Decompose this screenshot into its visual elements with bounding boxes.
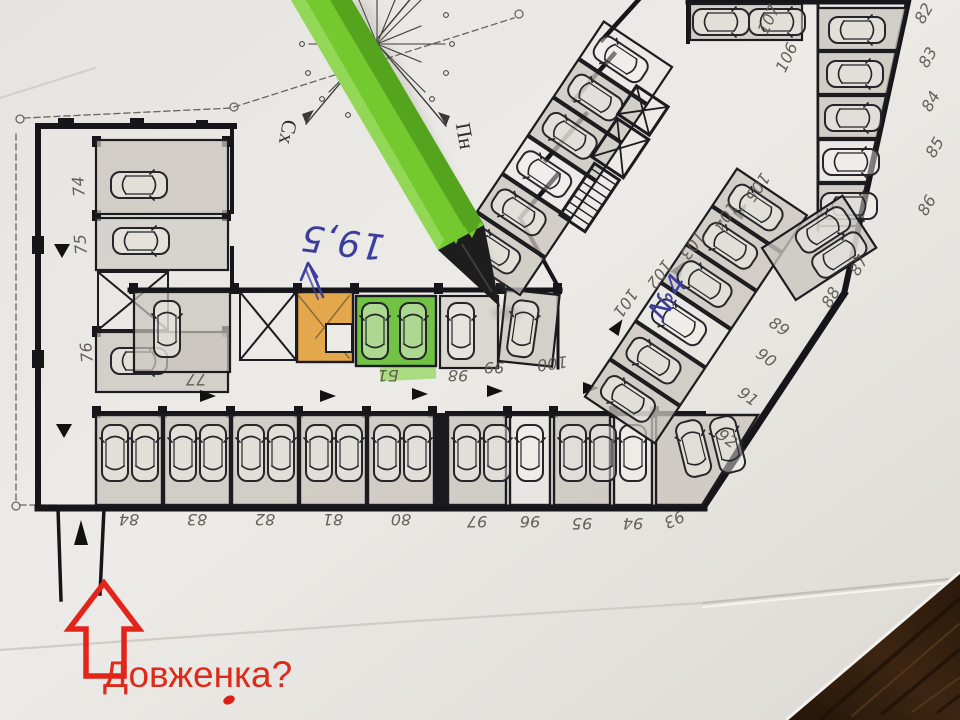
spot-label: 80 — [391, 510, 411, 529]
car-icon — [588, 425, 618, 481]
car-icon — [198, 425, 228, 481]
spot-label: 75 — [70, 234, 91, 256]
bottom-left-group — [96, 415, 434, 505]
spot-label: 94 — [623, 514, 643, 533]
car-icon — [130, 425, 160, 481]
car-icon — [304, 425, 334, 481]
compass-north-label: Пн — [451, 121, 479, 151]
spot-label: 98 — [448, 366, 468, 385]
car-icon — [558, 425, 588, 481]
car-icon — [266, 425, 296, 481]
car-icon — [452, 425, 482, 481]
car-icon — [152, 301, 182, 357]
car-icon — [236, 425, 266, 481]
street-question-text: Довженка? — [103, 654, 292, 695]
car-icon — [360, 303, 390, 359]
car-icon — [372, 425, 402, 481]
car-icon — [825, 103, 881, 133]
spot-label: 82 — [255, 510, 275, 529]
car-icon — [334, 425, 364, 481]
car-icon — [515, 425, 545, 481]
spot-label: 99 — [484, 358, 504, 377]
spot-label: 97 — [466, 512, 487, 531]
photo-of-parking-plan: 74 75 76 — [0, 0, 960, 720]
car-icon — [111, 170, 167, 200]
spot-label: 95 — [572, 514, 592, 533]
car-icon — [402, 425, 432, 481]
car-icon — [113, 226, 169, 256]
spot-label: 96 — [520, 512, 540, 531]
spot-label: 83 — [187, 510, 207, 529]
car-icon — [693, 7, 749, 37]
spot-label: 76 — [76, 342, 97, 364]
car-icon — [100, 425, 130, 481]
photo-canvas: 74 75 76 — [0, 0, 960, 720]
spot-label: 84 — [119, 510, 139, 529]
spot-label: Б1 — [377, 366, 398, 385]
spot-label: 77 — [185, 370, 206, 389]
car-icon — [398, 303, 428, 359]
spot-label: 74 — [68, 176, 89, 198]
car-icon — [168, 425, 198, 481]
bottom-right-group — [448, 414, 758, 505]
compass-east-label: Сх — [274, 118, 302, 147]
car-icon — [827, 59, 883, 89]
car-icon — [482, 425, 512, 481]
car-icon — [823, 147, 879, 177]
car-icon — [829, 15, 885, 45]
car-icon — [446, 303, 476, 359]
spot-label: 81 — [323, 510, 343, 529]
highlight-orange-spot — [297, 292, 353, 362]
